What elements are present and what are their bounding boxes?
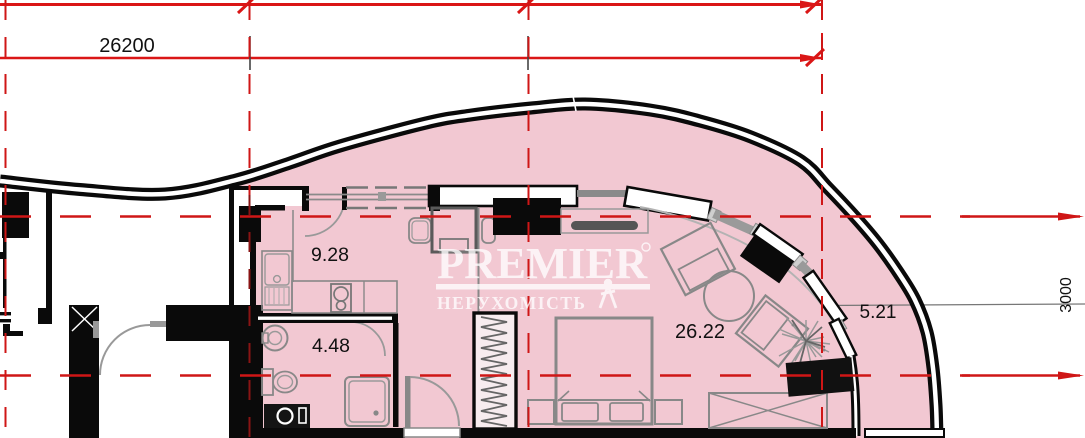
svg-text:5.21: 5.21 [860, 302, 897, 323]
svg-text:9.28: 9.28 [311, 244, 349, 266]
svg-text:НЕРУХОМІСТЬ: НЕРУХОМІСТЬ [437, 293, 586, 313]
svg-text:26.22: 26.22 [675, 321, 725, 343]
svg-text:PREMIER: PREMIER [437, 238, 648, 288]
svg-text:26200: 26200 [99, 35, 155, 57]
svg-text:3000: 3000 [1058, 277, 1075, 313]
svg-text:4.48: 4.48 [312, 335, 350, 357]
